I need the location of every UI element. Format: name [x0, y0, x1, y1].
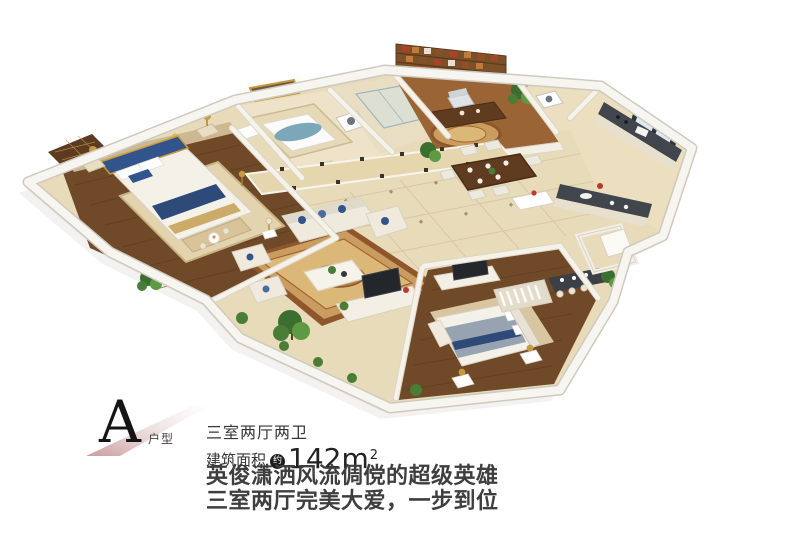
slogan-block: 英俊潇洒风流倜傥的超级英雄 三室两厅完美大爱，一步到位: [206, 464, 499, 514]
slogan-line1: 英俊潇洒风流倜傥的超级英雄: [206, 464, 499, 489]
plate-letter-label: 户型: [148, 430, 174, 447]
area-superscript: 2: [370, 448, 378, 463]
balcony-plant: [410, 384, 422, 396]
plate-letter: A: [99, 392, 141, 452]
living-plant-small: [236, 312, 248, 324]
slogan-line2: 三室两厅完美大爱，一步到位: [206, 489, 499, 514]
layout-spec: 三室两厅两卫: [206, 419, 377, 443]
poster-canvas: A 户型 三室两厅两卫 建筑面积 约 142m 2 英俊潇洒风流倜傥的超级英雄 …: [0, 0, 800, 533]
